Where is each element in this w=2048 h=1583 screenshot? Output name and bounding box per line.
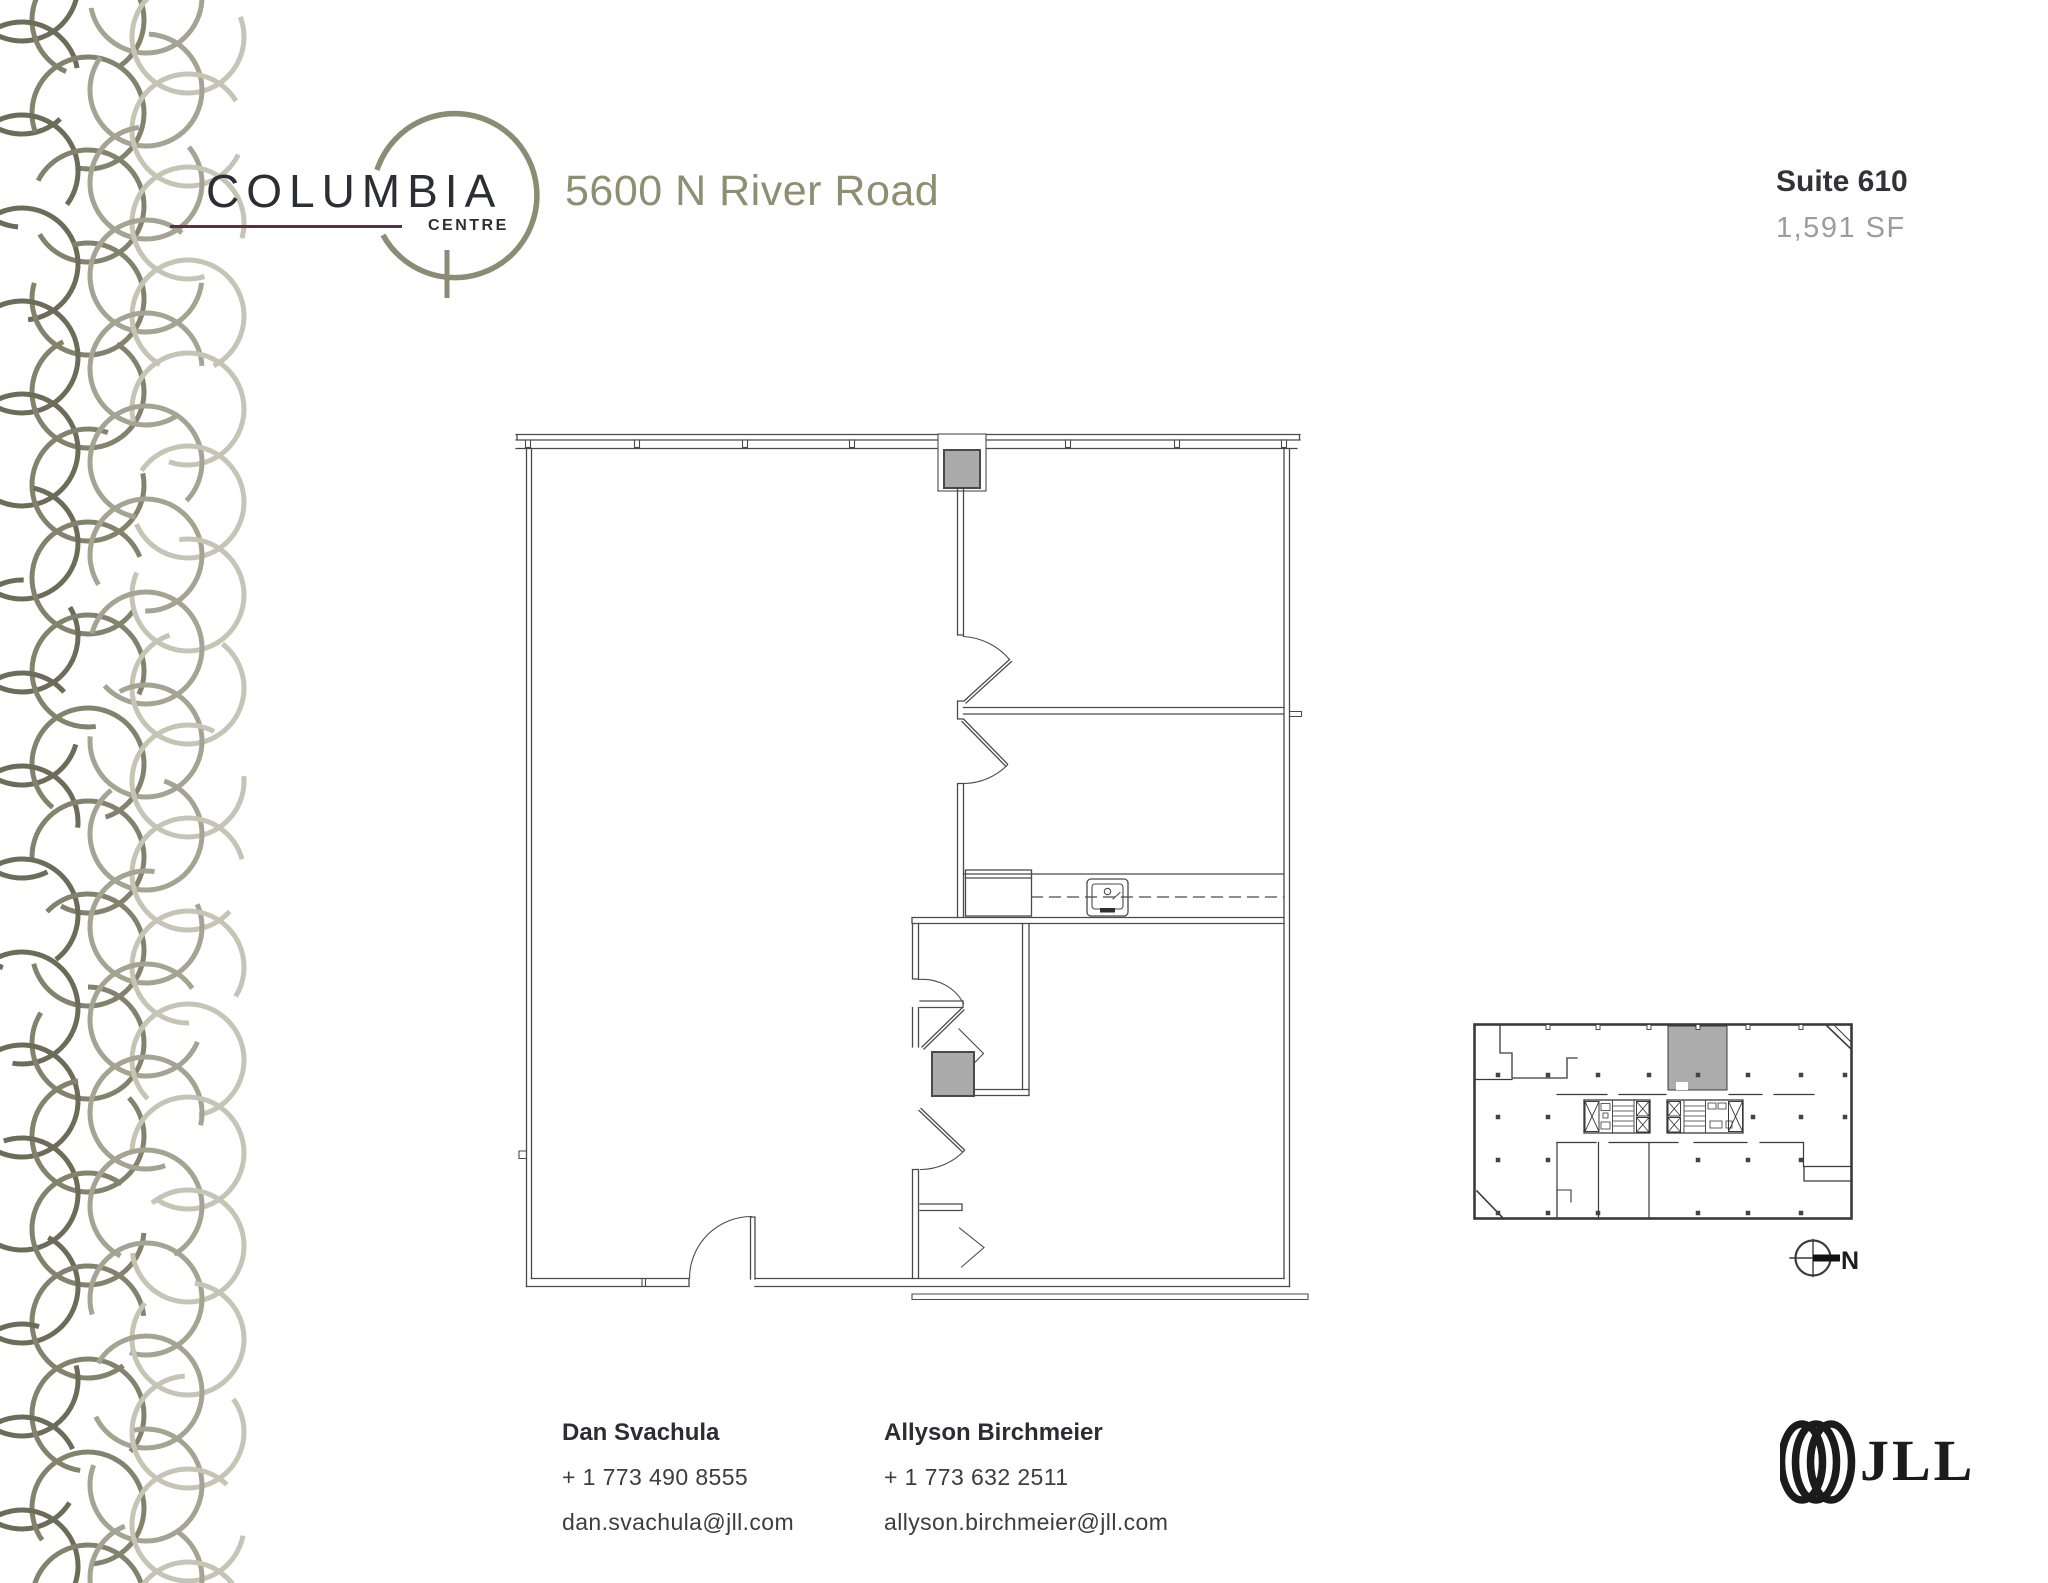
kitchenette xyxy=(912,870,1284,924)
contact-card: Allyson Birchmeier + 1 773 632 2511 ally… xyxy=(884,1421,1168,1556)
keyplan-outline xyxy=(1475,1025,1852,1219)
columbia-tagline: CENTRE xyxy=(428,218,509,234)
page-title: 5600 N River Road xyxy=(565,170,939,213)
left-wall xyxy=(519,449,532,1287)
suite-title: Suite 610 xyxy=(1776,167,1908,197)
window-wall xyxy=(516,435,1300,449)
contact-name: Allyson Birchmeier xyxy=(884,1421,1168,1445)
interior-horizontal-wall xyxy=(964,708,1285,715)
suite-area: 1,591 SF xyxy=(1776,214,1908,243)
contact-name: Dan Svachula xyxy=(562,1421,794,1445)
floor-plan-drawing xyxy=(505,420,1315,1310)
keyplan-suite-highlight xyxy=(1668,1026,1727,1090)
north-compass-icon xyxy=(1790,1240,1840,1277)
brand-underline xyxy=(170,225,402,228)
column-top xyxy=(938,434,986,491)
lower-closet-door xyxy=(920,1204,984,1267)
central-wall-lower xyxy=(958,784,964,918)
key-plan-drawing: N xyxy=(1450,1005,1880,1315)
north-label: N xyxy=(1841,1247,1859,1275)
contact-phone: + 1 773 632 2511 xyxy=(884,1466,1168,1489)
contact-phone: + 1 773 490 8555 xyxy=(562,1466,794,1489)
door-two xyxy=(962,720,1008,784)
decorative-circle-pattern xyxy=(0,0,260,1583)
contact-email: allyson.birchmeier@jll.com xyxy=(884,1511,1168,1534)
right-wall xyxy=(1284,449,1302,1287)
jll-wordmark: JLL xyxy=(1860,1432,1975,1490)
column-closet xyxy=(932,1052,974,1096)
contact-email: dan.svachula@jll.com xyxy=(562,1511,794,1534)
suite-info: Suite 610 1,591 SF xyxy=(1776,167,1908,243)
bottom-wall-entry-door xyxy=(527,1217,1309,1300)
columbia-wordmark: COLUMBIA xyxy=(206,168,502,214)
door-three xyxy=(913,1109,965,1279)
flyer-page: { "brand": { "wordmark": "COLUMBIA", "ta… xyxy=(0,0,2048,1583)
closet-area xyxy=(913,924,1030,1097)
central-wall-upper xyxy=(958,489,1012,719)
jll-globe-icon xyxy=(1780,1420,1860,1508)
contact-card: Dan Svachula + 1 773 490 8555 dan.svachu… xyxy=(562,1421,794,1556)
